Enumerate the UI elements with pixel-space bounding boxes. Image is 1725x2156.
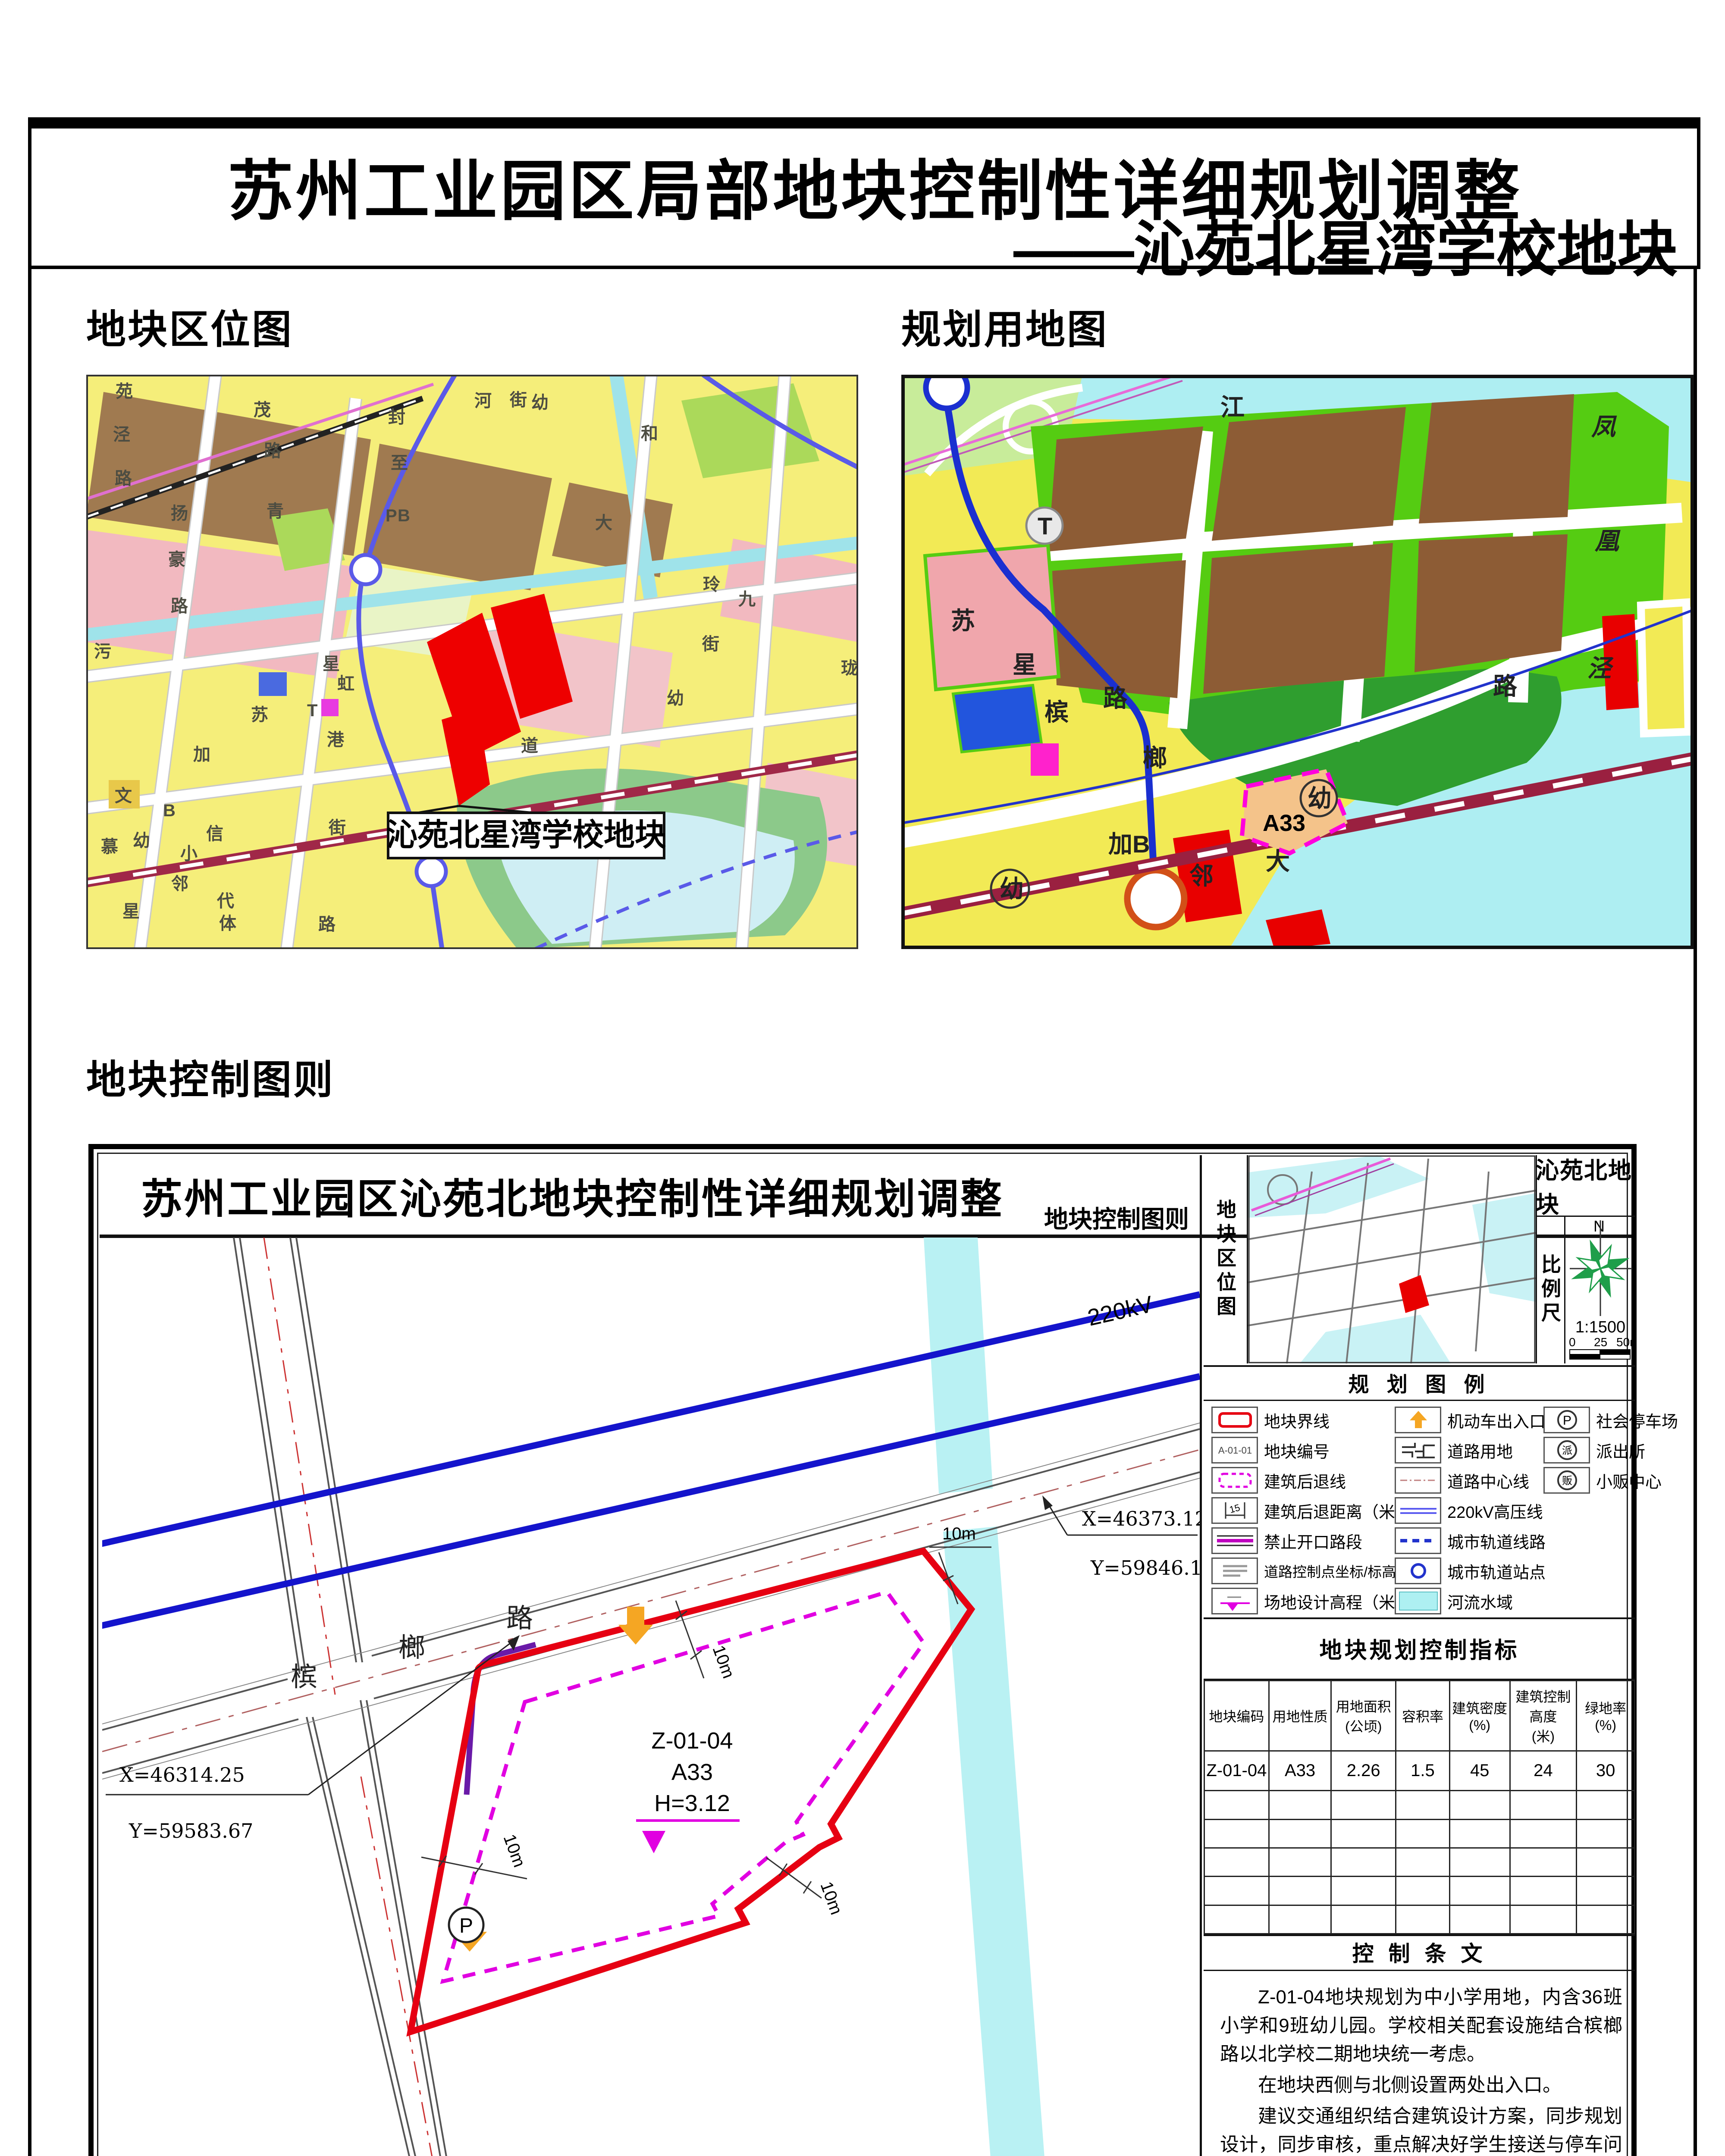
legend-rail-station: 城市轨道站点: [1395, 1557, 1543, 1584]
svg-text:Y=59583.67: Y=59583.67: [129, 1819, 253, 1843]
svg-text:虹: 虹: [337, 674, 354, 693]
power-line-label: 220kV: [1085, 1291, 1155, 1331]
svg-text:P: P: [386, 506, 397, 525]
svg-text:幼: 幼: [133, 831, 150, 850]
svg-text:豪: 豪: [168, 550, 185, 569]
svg-text:泾: 泾: [113, 425, 130, 444]
panel-top-row: 地块区位图 沁苑北地块: [1204, 1155, 1635, 1367]
svg-text:榔: 榔: [398, 1633, 425, 1663]
svg-text:幼: 幼: [1308, 785, 1332, 812]
svg-text:大: 大: [595, 514, 612, 533]
svg-text:加B: 加B: [1108, 830, 1150, 858]
provisions-title: 控 制 条 文: [1204, 1934, 1635, 1971]
legend-river: 河流水域: [1395, 1588, 1543, 1614]
road-name: 槟 榔 路: [291, 1604, 533, 1692]
callout-label: 沁苑北星湾学校地块: [386, 818, 666, 852]
legend-title: 规 划 图 例: [1204, 1365, 1635, 1401]
cell-green: 30: [1577, 1751, 1635, 1790]
svg-text:文: 文: [115, 787, 132, 805]
svg-text:街: 街: [328, 818, 346, 837]
parking-symbol: P: [459, 1915, 473, 1937]
svg-text:加: 加: [193, 745, 210, 764]
svg-text:江: 江: [1220, 394, 1245, 421]
provision-paragraph: 在地块西侧与北侧设置两处出入口。: [1220, 2071, 1622, 2100]
legend-plot-boundary: 地块界线: [1211, 1407, 1395, 1433]
svg-text:珑: 珑: [841, 659, 858, 678]
svg-text:污: 污: [94, 642, 111, 661]
legend-site-elevation: 场地设计高程（米）: [1211, 1588, 1395, 1614]
provision-paragraph: 建议交通组织结合建筑设计方案，同步规划设计，同步审核，重点解决好学生接送与停车问…: [1220, 2102, 1622, 2156]
svg-text:至: 至: [391, 454, 408, 473]
svg-text:河: 河: [474, 392, 492, 411]
cell-plot-code: Z-01-04: [1204, 1751, 1269, 1790]
indicator-table: 地块规划控制指标 地块编码 用地性质 用地面积 (公顷) 容积率 建筑密度 (%…: [1204, 1617, 1635, 1936]
legend-no-opening: 禁止开口路段: [1211, 1527, 1395, 1554]
coord-callout-left: X=46314.25 Y=59583.67: [119, 1763, 253, 1843]
svg-text:道: 道: [521, 736, 538, 755]
title-block: 苏州工业园区局部地块控制性详细规划调整 ——沁苑北星湾学校地块: [28, 117, 1700, 269]
north-label: N: [1593, 1217, 1605, 1235]
svg-text:T: T: [1038, 512, 1052, 539]
legend-road-centerline: 道路中心线: [1395, 1467, 1543, 1494]
control-chart-frame: 苏州工业园区沁苑北地块控制性详细规划调整 地块控制图则: [88, 1144, 1637, 2156]
svg-text:星: 星: [1013, 651, 1037, 678]
provisions: 控 制 条 文 Z-01-04地块规划为中小学用地，内含36班小学和9班幼儿园。…: [1204, 1934, 1635, 2156]
svg-text:青: 青: [267, 502, 284, 521]
col-header: 绿地率 (%): [1577, 1681, 1635, 1751]
site-elevation: H=3.12: [654, 1790, 730, 1816]
col-header: 用地性质: [1269, 1681, 1331, 1751]
svg-text:幼: 幼: [1000, 875, 1024, 903]
svg-text:0: 0: [1569, 1335, 1576, 1349]
section-header-location: 地块区位图: [86, 298, 293, 355]
svg-text:港: 港: [327, 730, 345, 749]
plan-drawing: 220kV 10m 10m 10m 10m Z-01-04 A33 H=3.12: [102, 1238, 1200, 2156]
svg-text:凰: 凰: [1594, 527, 1621, 555]
page-border-left: [28, 117, 31, 2156]
provision-paragraph: Z-01-04地块规划为中小学用地，内含36班小学和9班幼儿园。学校相关配套设施…: [1220, 1983, 1622, 2068]
cell-far: 1.5: [1396, 1751, 1450, 1790]
section-header-landuse: 规划用地图: [901, 298, 1108, 355]
scale-strip-label: 比例尺: [1536, 1217, 1565, 1363]
svg-text:B: B: [163, 801, 176, 820]
plan-sheet: 苏州工业园区局部地块控制性详细规划调整 ——沁苑北星湾学校地块 地块区位图 规划…: [0, 0, 1725, 2156]
svg-text:街: 街: [509, 391, 527, 410]
svg-text:路: 路: [318, 915, 336, 934]
svg-text:槟: 槟: [1044, 699, 1069, 726]
svg-text:路: 路: [115, 469, 132, 488]
col-header: 容积率: [1396, 1681, 1450, 1751]
mini-location-map: [1248, 1155, 1536, 1363]
svg-text:苏: 苏: [951, 607, 975, 634]
svg-text:路: 路: [264, 442, 282, 461]
legend-setback-line: 建筑后退线: [1211, 1467, 1395, 1494]
cell-height: 24: [1510, 1751, 1577, 1790]
coord-callout-right: X=46373.12 Y=59846.18: [1082, 1507, 1200, 1579]
page-border-right: [1694, 117, 1697, 2156]
svg-text:贩: 贩: [1562, 1475, 1572, 1487]
location-strip-label: 地块区位图: [1204, 1155, 1248, 1363]
svg-text:凤: 凤: [1591, 413, 1617, 440]
svg-text:X=46314.25: X=46314.25: [119, 1763, 245, 1786]
svg-text:幼: 幼: [531, 393, 549, 412]
location-map: 沁苑北星湾学校地块 苑 泾 路 茂 路 封 至 河 街 幼 和 扬 豪 路 青 …: [86, 375, 858, 949]
landuse-map: A33 江 凤 凰 泾 苏 星 槟 榔 路 路 大 幼 幼 邻 加B T: [901, 375, 1694, 949]
svg-text:路: 路: [1103, 685, 1128, 712]
provisions-text: Z-01-04地块规划为中小学用地，内含36班小学和9班幼儿园。学校相关配套设施…: [1204, 1971, 1635, 2156]
river-lower: [943, 1526, 1053, 2156]
svg-text:体: 体: [219, 914, 236, 933]
cell-density: 45: [1449, 1751, 1510, 1790]
section-header-control: 地块控制图则: [86, 1048, 335, 1105]
svg-text:邻: 邻: [1189, 862, 1214, 890]
road-edges: [102, 1238, 1200, 2156]
col-header: 地块编码: [1204, 1681, 1269, 1751]
svg-text:T: T: [307, 701, 317, 720]
legend-plot-number: A-01-01 地块编号: [1211, 1437, 1395, 1463]
dim-right: 10m: [942, 1524, 976, 1543]
legend-police: 派 派出所: [1543, 1437, 1678, 1463]
svg-text:玲: 玲: [703, 575, 720, 594]
entrance-arrow-north: [618, 1607, 653, 1645]
svg-text:路: 路: [1493, 673, 1518, 700]
svg-text:信: 信: [206, 824, 223, 843]
svg-text:苏: 苏: [251, 705, 268, 724]
svg-text:榔: 榔: [1143, 744, 1167, 771]
dim-left: 10m: [500, 1832, 529, 1870]
svg-text:50m: 50m: [1616, 1335, 1635, 1349]
svg-text:派: 派: [1562, 1445, 1572, 1457]
drawing-corner-label: 地块控制图则: [766, 1200, 1189, 1235]
legend-power-line: 220kV高压线: [1395, 1497, 1543, 1524]
plot-name: 沁苑北地块: [1536, 1155, 1635, 1217]
svg-text:B: B: [398, 506, 410, 525]
legend-control-point: 道路控制点坐标/标高: [1211, 1557, 1395, 1584]
svg-text:扬: 扬: [171, 504, 188, 523]
svg-text:25: 25: [1594, 1335, 1607, 1349]
plot-use: A33: [671, 1759, 713, 1785]
svg-text:槟: 槟: [291, 1662, 317, 1692]
legend-parking: P 社会停车场: [1543, 1407, 1678, 1433]
indicator-row: Z-01-04 A33 2.26 1.5 45 24 30: [1204, 1751, 1635, 1790]
svg-text:路: 路: [506, 1604, 533, 1633]
road-centerline-ns: [264, 1238, 454, 2156]
legend-hawker: 贩 小贩中心: [1543, 1467, 1678, 1494]
svg-text:星: 星: [323, 655, 340, 674]
svg-text:九: 九: [738, 590, 756, 609]
svg-text:15: 15: [1228, 1502, 1241, 1515]
svg-text:大: 大: [1266, 848, 1290, 875]
svg-text:路: 路: [171, 597, 188, 616]
cell-use: A33: [1269, 1751, 1331, 1790]
legend-road-land: 道路用地: [1395, 1437, 1543, 1463]
indicator-title: 地块规划控制指标: [1204, 1617, 1635, 1680]
col-header: 建筑控制高度 (米): [1510, 1681, 1577, 1751]
svg-text:Y=59846.18: Y=59846.18: [1090, 1556, 1200, 1579]
elevation-triangle: [642, 1831, 665, 1853]
svg-text:幼: 幼: [667, 689, 684, 708]
svg-text:星: 星: [122, 902, 140, 921]
cell-area: 2.26: [1331, 1751, 1396, 1790]
panel-divider: [1200, 1155, 1202, 2156]
svg-text:小: 小: [180, 844, 198, 863]
svg-text:A-01-01: A-01-01: [1218, 1445, 1252, 1456]
svg-text:泾: 泾: [1587, 655, 1614, 682]
svg-text:茂: 茂: [254, 401, 271, 420]
svg-text:街: 街: [702, 635, 719, 654]
info-panel: 地块区位图 沁苑北地块: [1204, 1155, 1635, 2156]
page-subtitle: ——沁苑北星湾学校地块: [1013, 201, 1678, 288]
north-rose: N: [1565, 1217, 1635, 1363]
legend-setback-distance: 15 建筑后退距离（米）: [1211, 1497, 1395, 1524]
svg-text:封: 封: [388, 408, 405, 427]
svg-text:慕: 慕: [101, 837, 118, 856]
legend-rail-line: 城市轨道线路: [1395, 1527, 1543, 1554]
dim-top: 10m: [709, 1643, 738, 1681]
legend: 规 划 图 例 地块界线 机动车出入口 P 社会停车场: [1204, 1365, 1635, 1619]
col-header: 用地面积 (公顷): [1331, 1681, 1396, 1751]
svg-text:P: P: [1563, 1413, 1571, 1428]
road-centerline-binlang: [102, 1450, 1200, 1752]
parcel-a33-label: A33: [1263, 810, 1305, 836]
svg-text:苑: 苑: [116, 382, 133, 401]
svg-text:邻: 邻: [171, 874, 188, 893]
legend-vehicle-entrance: 机动车出入口: [1395, 1407, 1543, 1433]
col-header: 建筑密度 (%): [1449, 1681, 1510, 1751]
svg-text:X=46373.12: X=46373.12: [1082, 1507, 1200, 1530]
river-upper: [924, 1238, 993, 1494]
scale-bar: 0 25 50m: [1569, 1335, 1635, 1359]
svg-text:和: 和: [641, 424, 658, 443]
scale-ratio: 1:1500: [1575, 1318, 1625, 1336]
plot-code: Z-01-04: [651, 1728, 733, 1754]
svg-text:代: 代: [216, 892, 234, 911]
